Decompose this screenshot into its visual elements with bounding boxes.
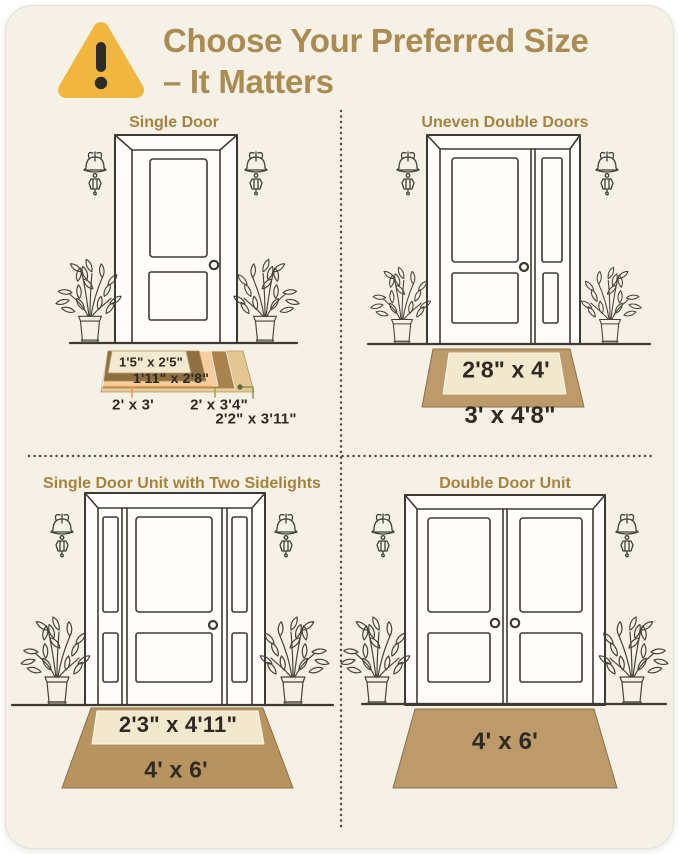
- door-knob: [520, 263, 528, 271]
- wall-lamp-icon: [372, 514, 394, 557]
- page-title-line2: – It Matters: [163, 61, 589, 102]
- wall-lamp-icon: [51, 514, 73, 557]
- wall-lamp-icon: [84, 152, 106, 195]
- door-knob: [511, 619, 519, 627]
- potted-plant-icon: [581, 267, 642, 343]
- mat-size-label: 2'2" x 3'11": [215, 411, 296, 428]
- door-knob: [491, 619, 499, 627]
- page-title: Choose Your Preferred Size – It Matters: [163, 20, 589, 102]
- wall-lamp-icon: [275, 514, 297, 557]
- wall-lamp-icon: [397, 152, 419, 195]
- mat-size-label: 4' x 6': [472, 728, 538, 756]
- mat-size-label: 1'11" x 2'8": [133, 370, 209, 386]
- mat-size-label: 1'5" x 2'5": [119, 355, 183, 370]
- wall-lamp-icon: [245, 152, 267, 195]
- potted-plant-icon: [233, 259, 299, 342]
- potted-plant-icon: [598, 617, 668, 704]
- double-door-illustration: [362, 495, 666, 705]
- potted-plant-icon: [371, 267, 432, 343]
- door-knob: [210, 261, 218, 269]
- leader-dot: [237, 384, 242, 389]
- potted-plant-icon: [21, 617, 91, 704]
- warning-triangle-icon: [66, 30, 136, 90]
- wall-lamp-icon: [616, 514, 638, 557]
- mat-size-label: 2'8" x 4': [462, 357, 550, 384]
- potted-plant-icon: [259, 617, 329, 704]
- potted-plant-icon: [341, 617, 411, 704]
- mat-size-label: 4' x 6': [144, 757, 208, 784]
- door-knob: [209, 621, 217, 629]
- single-door-sidelights-illustration: [12, 493, 333, 705]
- mat-size-label: 2' x 3': [112, 397, 154, 414]
- mat-size-label: 2'3" x 4'11": [119, 712, 237, 738]
- page-title-line1: Choose Your Preferred Size: [163, 20, 589, 61]
- section-title-double-door: Double Door Unit: [439, 475, 571, 493]
- section-title-single-door-sidelights: Single Door Unit with Two Sidelights: [43, 475, 321, 493]
- infographic: Choose Your Preferred Size – It Matters …: [0, 0, 679, 854]
- section-title-uneven-double-doors: Uneven Double Doors: [421, 114, 588, 132]
- wall-lamp-icon: [596, 152, 618, 195]
- potted-plant-icon: [56, 259, 122, 342]
- mat-size-label: 3' x 4'8": [464, 402, 555, 430]
- section-title-single-door: Single Door: [129, 114, 219, 132]
